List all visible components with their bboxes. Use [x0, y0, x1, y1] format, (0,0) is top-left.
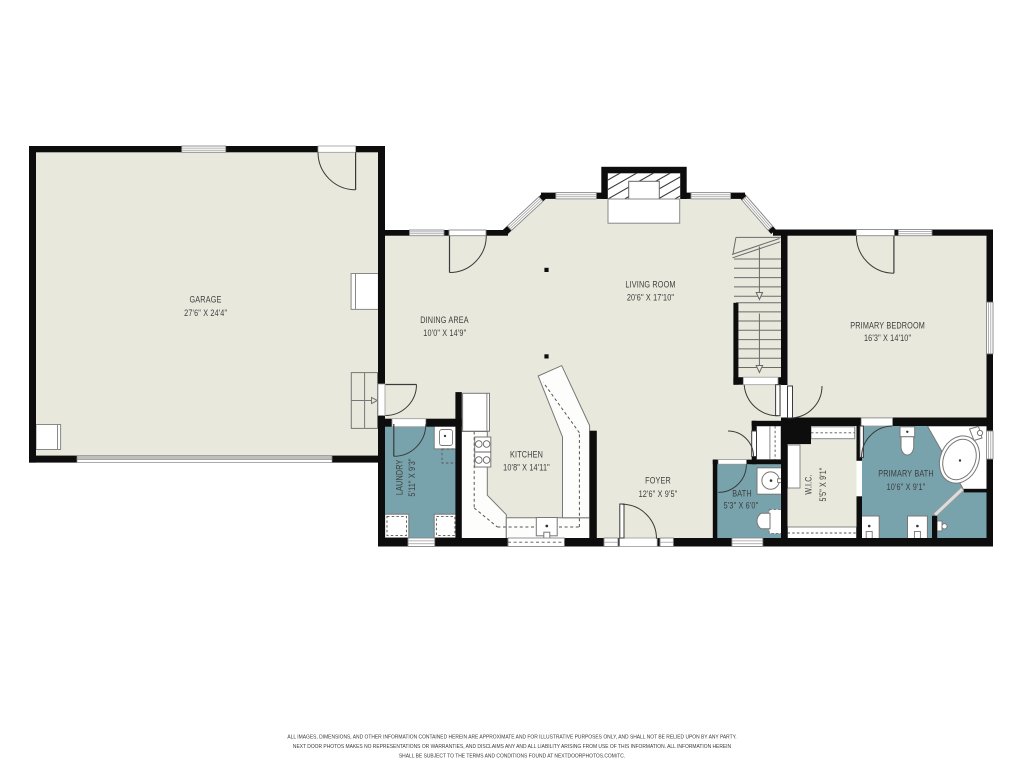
svg-text:BATH: BATH: [732, 488, 751, 499]
svg-text:10'0" X 14'9": 10'0" X 14'9": [423, 327, 466, 338]
svg-text:GARAGE: GARAGE: [189, 294, 221, 305]
svg-text:LIVING ROOM: LIVING ROOM: [625, 279, 675, 290]
svg-text:PRIMARY BATH: PRIMARY BATH: [878, 468, 934, 479]
svg-text:DINING AREA: DINING AREA: [420, 314, 469, 325]
svg-text:10'8" X 14'11": 10'8" X 14'11": [503, 462, 550, 473]
svg-text:FOYER: FOYER: [645, 475, 671, 486]
svg-text:LAUNDRY: LAUNDRY: [393, 459, 404, 495]
svg-text:PRIMARY BEDROOM: PRIMARY BEDROOM: [850, 320, 925, 331]
svg-text:KITCHEN: KITCHEN: [510, 449, 543, 460]
svg-text:W.I.C.: W.I.C.: [804, 474, 814, 494]
svg-text:5'11" X 9'3": 5'11" X 9'3": [406, 458, 417, 496]
svg-text:10'6" X 9'1": 10'6" X 9'1": [887, 481, 926, 492]
svg-text:ALL IMAGES, DIMENSIONS, AND OT: ALL IMAGES, DIMENSIONS, AND OTHER INFORM…: [287, 734, 736, 740]
svg-text:27'6" X 24'4": 27'6" X 24'4": [184, 307, 227, 318]
svg-text:12'6" X 9'5": 12'6" X 9'5": [639, 488, 678, 499]
svg-text:NEXT DOOR PHOTOS MAKES NO REPR: NEXT DOOR PHOTOS MAKES NO REPRESENTATION…: [293, 744, 731, 750]
svg-text:16'3" X 14'10": 16'3" X 14'10": [864, 332, 911, 343]
svg-text:20'6" X 17'10": 20'6" X 17'10": [627, 291, 674, 302]
svg-text:5'5" X 9'1": 5'5" X 9'1": [818, 467, 828, 501]
svg-text:5'3" X 6'0": 5'3" X 6'0": [724, 500, 759, 511]
svg-text:SHALL BE SUBJECT TO THE TERMS: SHALL BE SUBJECT TO THE TERMS AND CONDIT…: [399, 753, 625, 759]
